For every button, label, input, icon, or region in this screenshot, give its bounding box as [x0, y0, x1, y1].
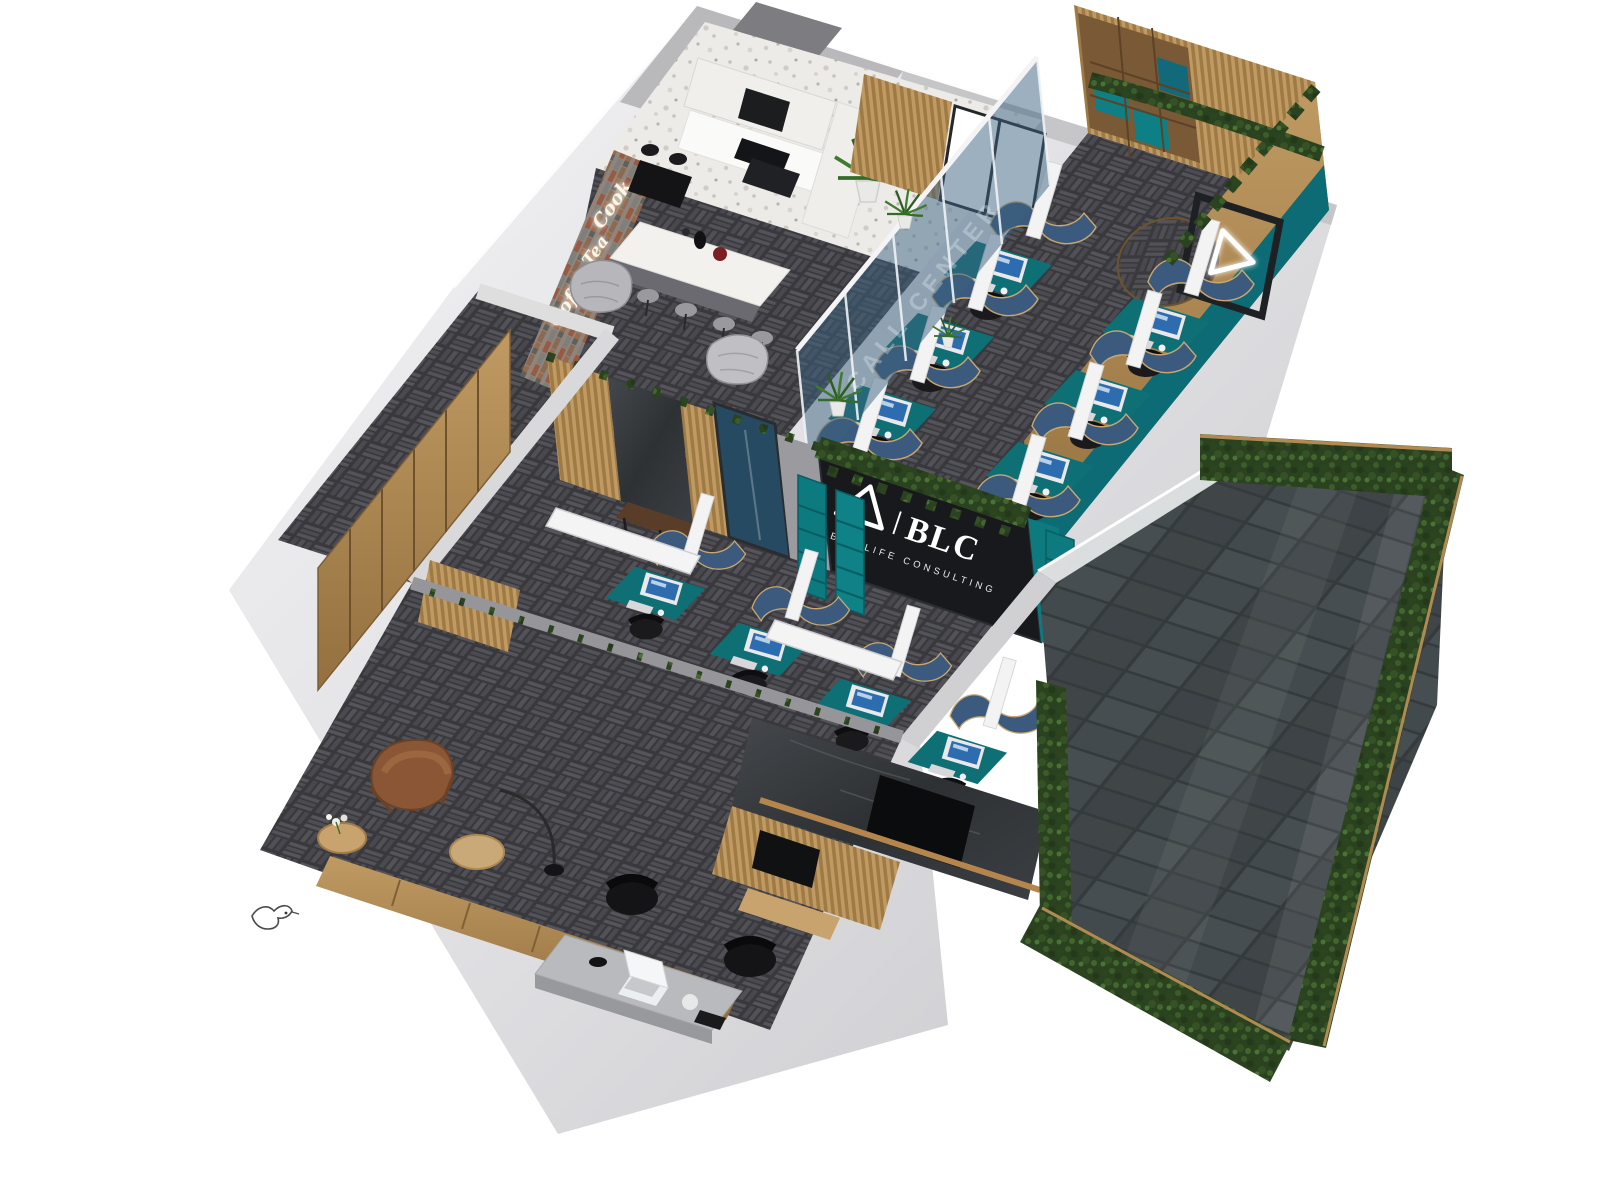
- vase: [694, 231, 706, 249]
- fruit-bowl: [713, 247, 727, 261]
- desk-phone: [589, 957, 607, 967]
- bird-sketch-icon: [252, 906, 299, 929]
- floorplan-stage: Cook Tea Coffee: [0, 0, 1600, 1200]
- hedge-west: [1036, 680, 1072, 930]
- floorplan-render: Cook Tea Coffee: [0, 0, 1600, 1200]
- round-wood-rug: [450, 835, 504, 869]
- tray: [682, 994, 698, 1010]
